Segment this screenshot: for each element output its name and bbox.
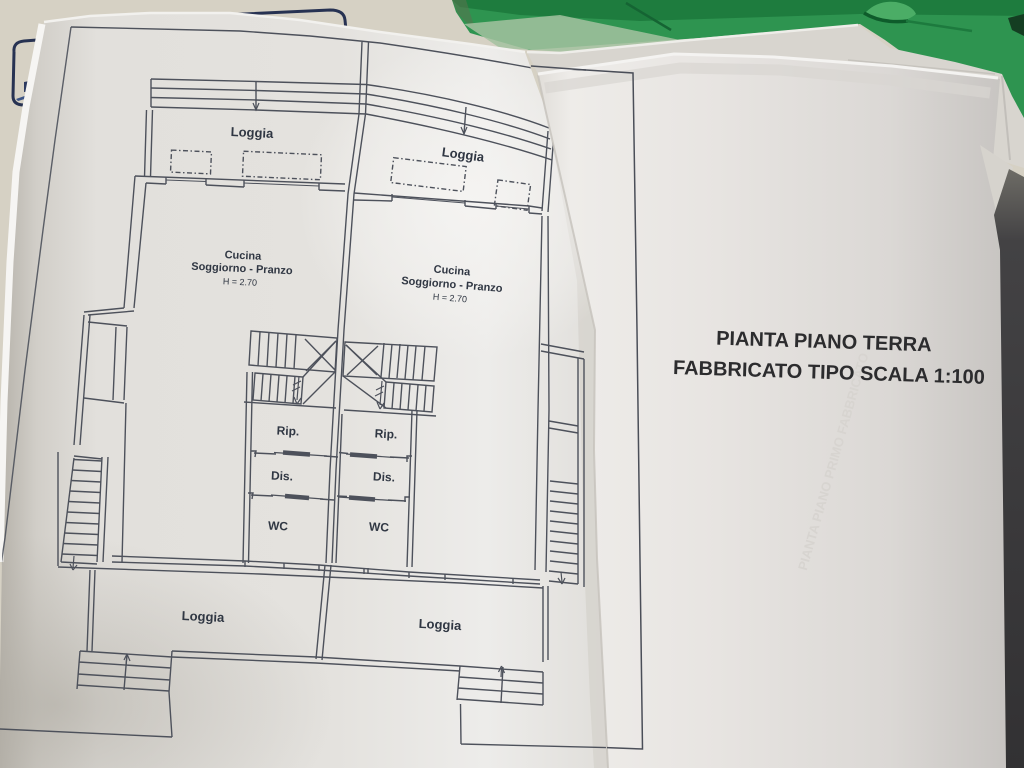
svg-text:Loggia: Loggia <box>418 616 462 633</box>
svg-text:Loggia: Loggia <box>230 124 274 141</box>
svg-text:Dis.: Dis. <box>373 469 396 484</box>
svg-text:WC: WC <box>369 519 390 534</box>
svg-text:H = 2.70: H = 2.70 <box>223 276 258 288</box>
svg-text:Cucina: Cucina <box>224 249 262 263</box>
svg-text:Rip.: Rip. <box>276 423 299 438</box>
svg-text:Loggia: Loggia <box>181 608 225 625</box>
svg-text:Rip.: Rip. <box>374 426 397 441</box>
svg-text:WC: WC <box>268 519 289 534</box>
svg-text:Dis.: Dis. <box>271 469 294 484</box>
